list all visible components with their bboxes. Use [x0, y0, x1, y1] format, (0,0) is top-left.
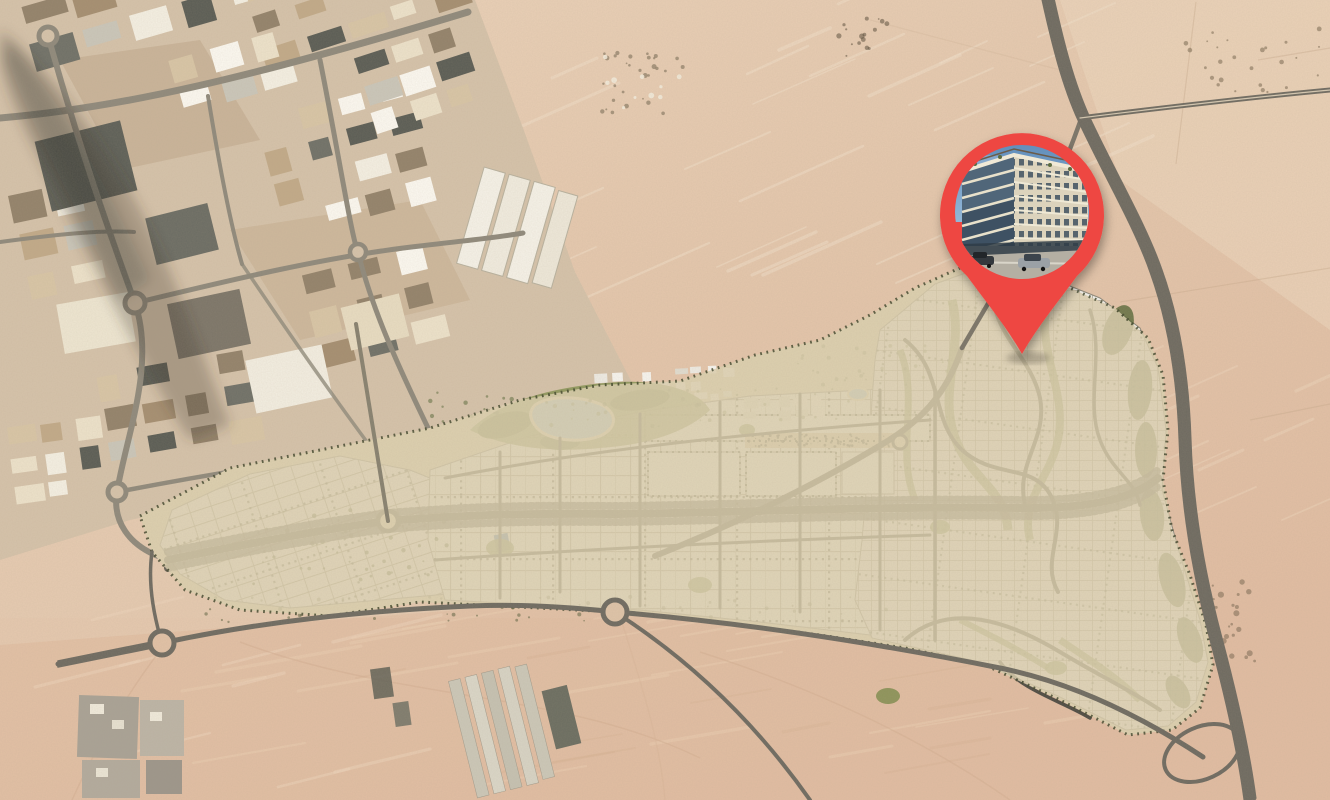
pin-ground-shadow: [1006, 352, 1050, 364]
sand-grain-overlay: [0, 0, 1330, 800]
satellite-map[interactable]: [0, 0, 1330, 800]
map-viewport[interactable]: [0, 0, 1330, 800]
